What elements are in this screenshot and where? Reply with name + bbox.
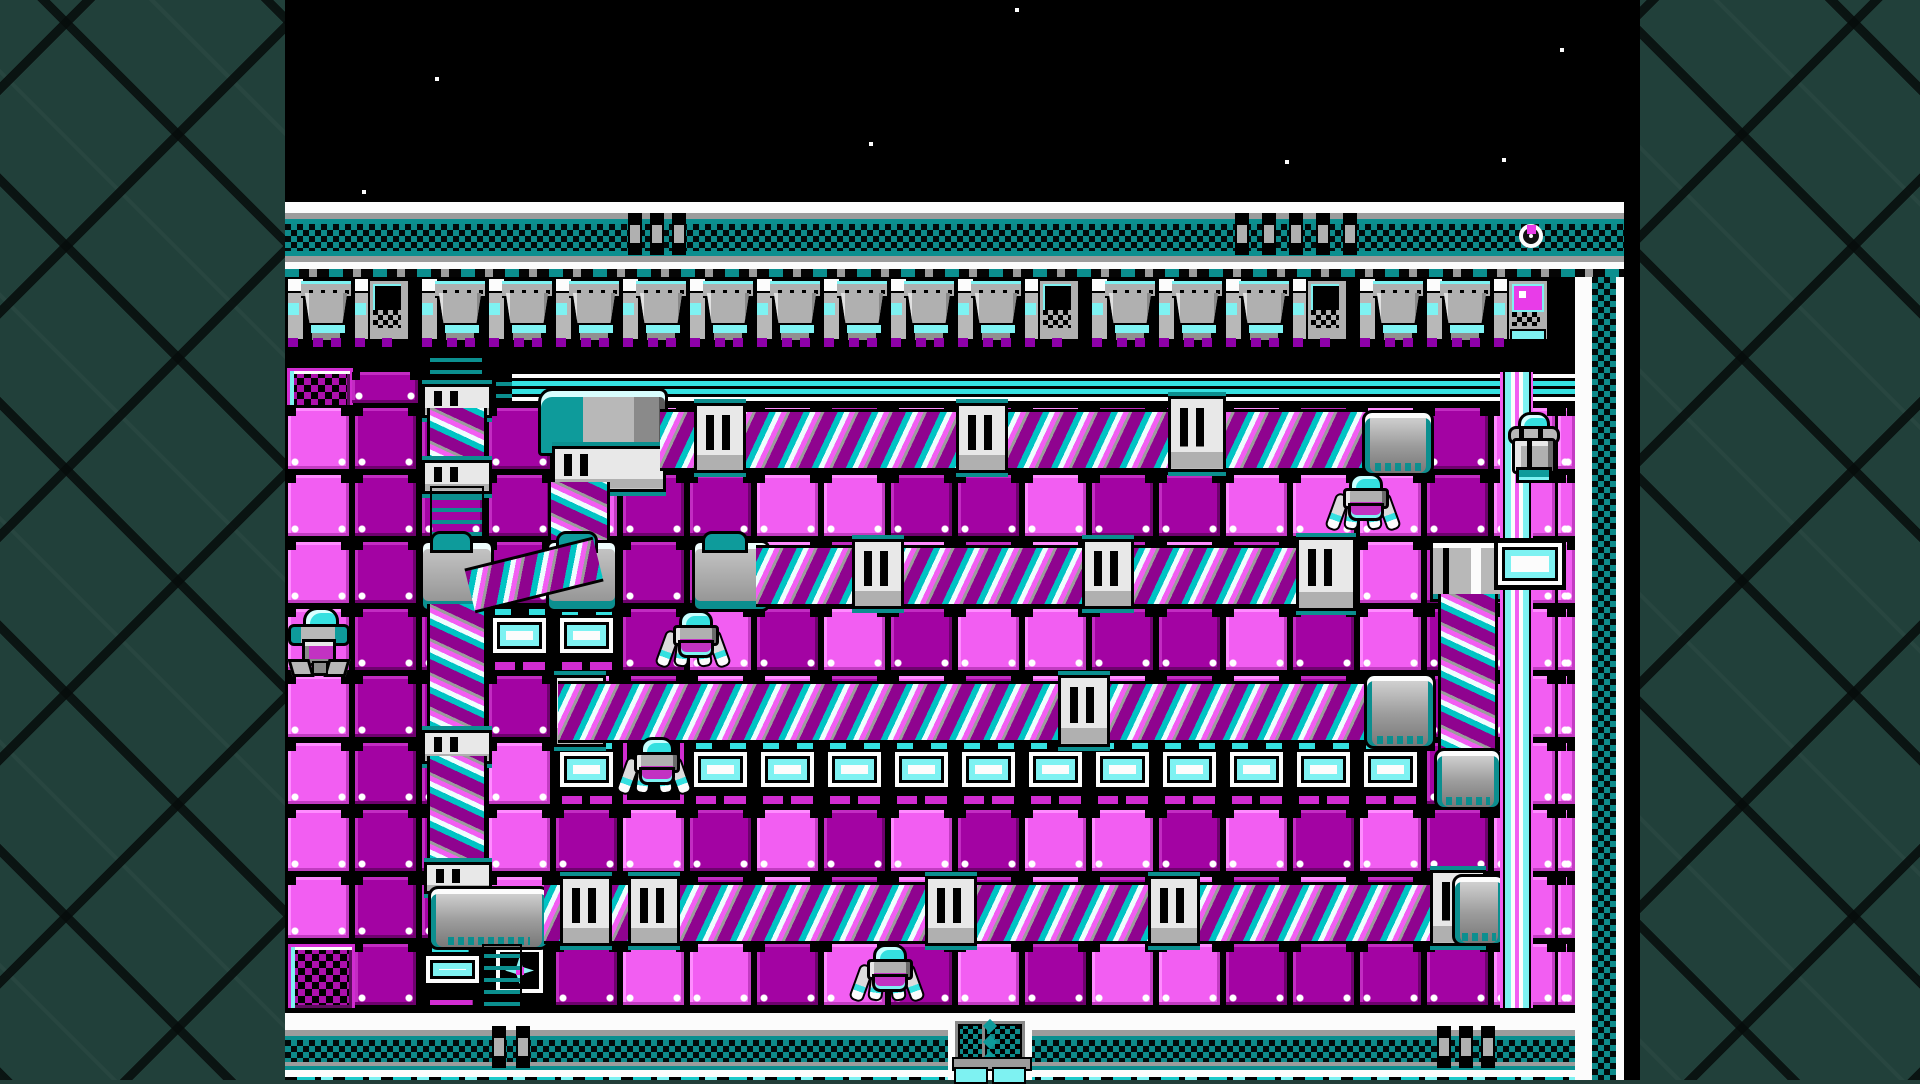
star bbox=[869, 142, 873, 146]
dark-tile bbox=[1025, 944, 1086, 1005]
dark-tile bbox=[1427, 810, 1488, 871]
piston-machine bbox=[285, 277, 352, 345]
piston-machine bbox=[553, 277, 620, 345]
dark-tile bbox=[690, 810, 751, 871]
screw-coupler-plate bbox=[1296, 537, 1356, 611]
screw-conveyor-v bbox=[427, 408, 487, 468]
dark-tile bbox=[489, 475, 550, 536]
light-tile bbox=[757, 475, 818, 536]
screw-conveyor-h bbox=[756, 545, 1301, 607]
gate-bar bbox=[1343, 213, 1357, 255]
screw-coupler-plate bbox=[1058, 675, 1110, 747]
screw-coupler-plate bbox=[956, 403, 1008, 473]
piston-machine bbox=[888, 277, 955, 345]
screw-conveyor-v bbox=[427, 756, 487, 868]
screw-coupler-plate bbox=[560, 876, 612, 946]
dark-tile bbox=[355, 408, 416, 469]
band-white bbox=[285, 1013, 1575, 1030]
band-white bbox=[285, 202, 1640, 213]
star bbox=[362, 190, 366, 194]
band-white bbox=[285, 1070, 1575, 1077]
light-tile bbox=[1092, 810, 1153, 871]
screw-conveyor-v bbox=[1438, 594, 1498, 752]
screw-coupler-plate bbox=[628, 876, 680, 946]
star bbox=[1015, 8, 1019, 12]
edge-tile bbox=[1558, 743, 1575, 804]
light-tile bbox=[1360, 542, 1421, 603]
gate-bar bbox=[1235, 213, 1249, 255]
dark-tile bbox=[1226, 944, 1287, 1005]
pole-rider-enemy bbox=[1502, 412, 1560, 488]
dark-tile bbox=[1427, 944, 1488, 1005]
gate-bar bbox=[1459, 1026, 1473, 1068]
light-tile bbox=[1226, 475, 1287, 536]
dark-tile bbox=[1092, 609, 1153, 670]
edge-tile bbox=[1558, 475, 1575, 536]
spider-enemy bbox=[660, 610, 726, 670]
dark-tile bbox=[1427, 475, 1488, 536]
gate-bar bbox=[1262, 213, 1276, 255]
light-tile bbox=[757, 810, 818, 871]
beam-connector bbox=[494, 372, 514, 406]
dark-tile bbox=[355, 475, 416, 536]
light-tile bbox=[824, 609, 885, 670]
spider-enemy bbox=[621, 737, 687, 797]
crate-tile bbox=[1293, 743, 1354, 804]
edge-tile bbox=[1558, 408, 1575, 469]
piston-machine bbox=[1022, 277, 1089, 345]
crate-tile bbox=[757, 743, 818, 804]
screw-conveyor-v bbox=[427, 604, 487, 734]
screw-motor bbox=[1434, 748, 1502, 810]
screw-coupler-plate bbox=[1168, 396, 1226, 472]
spider-enemy bbox=[854, 944, 920, 1004]
dark-tile bbox=[1427, 408, 1488, 469]
crate-tile bbox=[556, 743, 617, 804]
piston-machine bbox=[1223, 277, 1290, 345]
light-tile bbox=[288, 877, 349, 938]
star bbox=[1502, 158, 1506, 162]
light-tile bbox=[1025, 475, 1086, 536]
machine-pipe bbox=[482, 944, 522, 1010]
wall-white bbox=[1575, 277, 1592, 1080]
light-tile bbox=[288, 408, 349, 469]
crate-tile bbox=[1025, 743, 1086, 804]
piston-machine bbox=[1491, 277, 1558, 345]
dark-tile bbox=[1293, 609, 1354, 670]
dark-tile bbox=[891, 475, 952, 536]
gate-bar bbox=[1316, 213, 1330, 255]
edge-tile bbox=[1558, 877, 1575, 938]
dark-tile bbox=[355, 609, 416, 670]
light-tile bbox=[1025, 810, 1086, 871]
crate-tile bbox=[690, 743, 751, 804]
gate-bar bbox=[1289, 213, 1303, 255]
piston-machine bbox=[1357, 277, 1424, 345]
crate-tile bbox=[958, 743, 1019, 804]
dark-tile bbox=[1293, 810, 1354, 871]
light-tile bbox=[1226, 609, 1287, 670]
crate-tile bbox=[556, 609, 617, 670]
crate-tile bbox=[1159, 743, 1220, 804]
dark-tile bbox=[958, 810, 1019, 871]
light-tile bbox=[623, 810, 684, 871]
edge-tile bbox=[1558, 676, 1575, 737]
light-tile bbox=[288, 475, 349, 536]
gate-bar bbox=[1437, 1026, 1451, 1068]
light-tile bbox=[1360, 609, 1421, 670]
piston-machine bbox=[620, 277, 687, 345]
walker-robot-enemy bbox=[288, 607, 350, 675]
piston-machine bbox=[1424, 277, 1491, 345]
light-tile bbox=[958, 944, 1019, 1005]
crate-tile bbox=[489, 609, 550, 670]
dark-tile bbox=[355, 944, 416, 1005]
dark-tile bbox=[1159, 475, 1220, 536]
dark-tile bbox=[489, 676, 550, 737]
band-checker bbox=[285, 224, 1640, 251]
dark-tile bbox=[757, 609, 818, 670]
screw-conveyor-h bbox=[558, 681, 1368, 743]
wall-checker bbox=[1592, 277, 1616, 1080]
piston-machine bbox=[352, 277, 419, 345]
light-tile bbox=[824, 475, 885, 536]
piston-machine bbox=[1089, 277, 1156, 345]
crate-tile bbox=[1092, 743, 1153, 804]
game-screen[interactable] bbox=[285, 0, 1640, 1080]
vent-tile bbox=[288, 944, 355, 1011]
gate-bar bbox=[516, 1026, 530, 1068]
piston-machine bbox=[821, 277, 888, 345]
star bbox=[1285, 160, 1289, 164]
band-white bbox=[285, 262, 1640, 269]
band-checker bbox=[285, 1040, 1575, 1062]
piston-machine bbox=[419, 277, 486, 345]
spider-enemy bbox=[1330, 473, 1396, 533]
edge-tile bbox=[1558, 810, 1575, 871]
dark-tile bbox=[556, 810, 617, 871]
edge-tile bbox=[1558, 609, 1575, 670]
gate-bar bbox=[1481, 1026, 1495, 1068]
screw-motor bbox=[1362, 410, 1434, 476]
dark-tile bbox=[355, 810, 416, 871]
wall-white bbox=[1616, 277, 1624, 1080]
dark-tile bbox=[1159, 609, 1220, 670]
screw-conveyor-h bbox=[660, 409, 1366, 471]
screw-coupler-plate bbox=[852, 539, 904, 609]
gate-bar bbox=[492, 1026, 506, 1068]
dark-tile bbox=[1293, 944, 1354, 1005]
dark-tile bbox=[1360, 944, 1421, 1005]
crate-tile bbox=[891, 743, 952, 804]
light-tile bbox=[958, 609, 1019, 670]
light-tile bbox=[623, 944, 684, 1005]
screw-coupler-plate bbox=[1148, 876, 1200, 946]
dark-tile bbox=[1092, 475, 1153, 536]
screw-motor bbox=[1364, 673, 1436, 749]
screw-coupler-plate bbox=[1082, 539, 1134, 609]
piston-machine bbox=[1156, 277, 1223, 345]
crate-tile bbox=[1360, 743, 1421, 804]
light-tile bbox=[690, 944, 751, 1005]
light-tile bbox=[1092, 944, 1153, 1005]
pole-crate bbox=[1494, 538, 1566, 590]
dark-tile bbox=[1159, 810, 1220, 871]
light-tile bbox=[288, 542, 349, 603]
light-tile bbox=[288, 743, 349, 804]
light-tile bbox=[1360, 810, 1421, 871]
light-tile bbox=[1159, 944, 1220, 1005]
crate-tile bbox=[824, 743, 885, 804]
gate-bar bbox=[628, 213, 642, 255]
dark-tile bbox=[623, 542, 684, 603]
crate-tile bbox=[422, 944, 483, 1005]
light-tile bbox=[489, 810, 550, 871]
light-tile bbox=[1226, 810, 1287, 871]
screw-motor bbox=[428, 886, 550, 950]
dark-tile bbox=[891, 609, 952, 670]
dark-tile bbox=[556, 944, 617, 1005]
light-tile bbox=[288, 676, 349, 737]
crate-tile bbox=[1226, 743, 1287, 804]
piston-machine bbox=[1290, 277, 1357, 345]
pickup-item bbox=[1519, 224, 1543, 248]
screw-coupler-plate bbox=[694, 403, 746, 473]
light-tile bbox=[1025, 609, 1086, 670]
dark-strip-tile bbox=[352, 372, 418, 403]
band-dashrow bbox=[285, 269, 1640, 277]
dark-tile bbox=[355, 743, 416, 804]
piston-machine bbox=[687, 277, 754, 345]
star bbox=[1560, 48, 1564, 52]
exit-door bbox=[948, 1013, 1032, 1080]
screw-coupler-plate bbox=[925, 876, 977, 946]
dark-tile bbox=[958, 475, 1019, 536]
light-tile bbox=[288, 810, 349, 871]
striped-beam bbox=[512, 372, 1575, 403]
light-tile bbox=[489, 743, 550, 804]
piston-machine bbox=[955, 277, 1022, 345]
gate-bar bbox=[672, 213, 686, 255]
screw-clamp bbox=[1430, 540, 1504, 602]
star bbox=[435, 77, 439, 81]
dark-tile bbox=[824, 810, 885, 871]
dark-tile bbox=[355, 676, 416, 737]
piston-machine bbox=[486, 277, 553, 345]
dark-tile bbox=[355, 542, 416, 603]
dark-tile bbox=[690, 475, 751, 536]
wall-black bbox=[1624, 0, 1640, 1080]
edge-tile bbox=[1558, 944, 1575, 1005]
dark-tile bbox=[757, 944, 818, 1005]
gate-bar bbox=[650, 213, 664, 255]
dark-tile bbox=[355, 877, 416, 938]
screw-motor bbox=[1452, 874, 1506, 946]
piston-machine bbox=[754, 277, 821, 345]
light-tile bbox=[891, 810, 952, 871]
